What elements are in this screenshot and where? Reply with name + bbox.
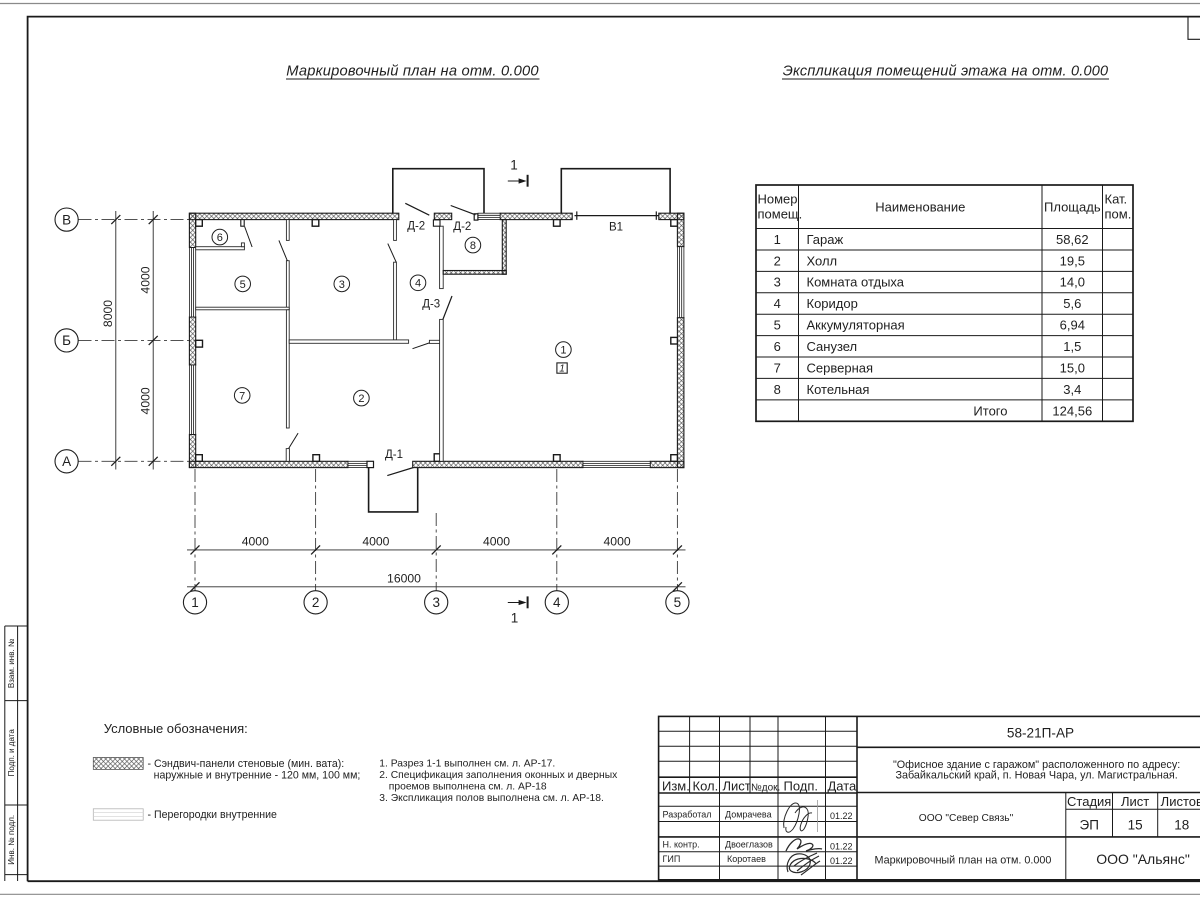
svg-text:2: 2 [312, 595, 320, 610]
svg-text:В1: В1 [609, 221, 623, 233]
svg-text:15,0: 15,0 [1060, 360, 1085, 375]
svg-text:5: 5 [674, 595, 682, 610]
svg-text:1. Разрез 1-1 выполнен см. л.: 1. Разрез 1-1 выполнен см. л. АР-17. [379, 759, 555, 770]
svg-text:Двоеглазов: Двоеглазов [725, 840, 773, 850]
svg-text:Лист: Лист [723, 778, 751, 793]
svg-text:6: 6 [217, 232, 223, 244]
svg-text:1: 1 [560, 345, 566, 357]
svg-text:Домрачева: Домрачева [725, 809, 772, 819]
svg-text:Кат.: Кат. [1105, 192, 1128, 207]
svg-text:3: 3 [432, 595, 440, 610]
svg-text:6: 6 [774, 339, 781, 354]
svg-text:4: 4 [774, 296, 781, 311]
svg-text:1: 1 [559, 363, 565, 374]
svg-text:Д-1: Д-1 [385, 449, 403, 461]
svg-text:- Сэндвич-панели стеновые (мин: - Сэндвич-панели стеновые (мин. вата): [148, 758, 345, 770]
svg-text:1: 1 [510, 158, 518, 173]
svg-text:Котельная: Котельная [807, 382, 870, 397]
svg-text:1: 1 [511, 611, 519, 626]
svg-text:4000: 4000 [604, 534, 631, 548]
svg-text:4: 4 [553, 595, 561, 610]
svg-text:3. Экспликация полов выполнена: 3. Экспликация полов выполнена см. л. АР… [379, 793, 604, 804]
svg-text:2: 2 [774, 253, 781, 268]
svg-text:7: 7 [239, 390, 245, 402]
svg-text:- Перегородки внутренние: - Перегородки внутренние [148, 809, 278, 821]
svg-text:Подп.: Подп. [784, 778, 819, 793]
svg-text:8: 8 [774, 382, 781, 397]
svg-text:8000: 8000 [101, 300, 115, 327]
svg-text:8: 8 [470, 240, 476, 252]
svg-text:Серверная: Серверная [807, 360, 874, 375]
svg-text:Коротаев: Коротаев [727, 854, 766, 864]
svg-text:16000: 16000 [387, 571, 421, 585]
svg-text:Взам. инв. №: Взам. инв. № [7, 638, 16, 688]
svg-text:124,56: 124,56 [1052, 403, 1092, 418]
svg-text:Маркировочный план на отм. 0.0: Маркировочный план на отм. 0.000 [286, 64, 539, 80]
svg-text:Лист: Лист [1121, 794, 1149, 809]
svg-text:Д-2: Д-2 [407, 221, 425, 233]
svg-text:58,62: 58,62 [1056, 232, 1089, 247]
svg-text:Забайкальский край, п. Новая Ч: Забайкальский край, п. Новая Чара, ул. М… [895, 770, 1177, 782]
svg-text:Коридор: Коридор [807, 296, 858, 311]
svg-text:Д-2: Д-2 [453, 221, 471, 233]
svg-text:1: 1 [191, 595, 199, 610]
svg-text:5: 5 [774, 318, 781, 333]
svg-text:2: 2 [358, 393, 364, 405]
svg-text:Разработал: Разработал [663, 809, 712, 819]
svg-text:Дата: Дата [828, 778, 858, 793]
svg-text:Итого: Итого [973, 403, 1007, 418]
svg-text:Стадия: Стадия [1067, 794, 1111, 809]
svg-text:4000: 4000 [139, 387, 153, 414]
svg-text:4000: 4000 [483, 534, 510, 548]
svg-text:01.22: 01.22 [830, 842, 853, 852]
svg-text:А: А [62, 454, 71, 469]
svg-text:наружные и внутренние - 120 мм: наружные и внутренние - 120 мм, 100 мм; [154, 770, 361, 782]
svg-text:Изм.: Изм. [662, 778, 690, 793]
svg-text:ООО "Альянс": ООО "Альянс" [1096, 851, 1190, 867]
svg-text:15: 15 [1128, 817, 1143, 832]
svg-text:ГИП: ГИП [663, 854, 681, 864]
svg-text:Аккумуляторная: Аккумуляторная [807, 318, 905, 333]
svg-text:Гараж: Гараж [807, 232, 844, 247]
svg-text:Санузел: Санузел [807, 339, 858, 354]
svg-text:1: 1 [774, 232, 781, 247]
svg-text:Б: Б [62, 333, 71, 348]
svg-text:Н. контр.: Н. контр. [663, 840, 700, 850]
svg-text:01.22: 01.22 [830, 811, 853, 821]
svg-text:58-21П-АР: 58-21П-АР [1007, 725, 1074, 740]
svg-text:7: 7 [774, 360, 781, 375]
svg-text:Маркировочный план на отм. 0.0: Маркировочный план на отм. 0.000 [875, 855, 1052, 867]
svg-text:Площадь: Площадь [1044, 200, 1101, 215]
svg-text:3: 3 [774, 275, 781, 290]
svg-text:5: 5 [240, 279, 246, 291]
svg-text:Условные обозначения:: Условные обозначения: [104, 721, 248, 736]
svg-text:6,94: 6,94 [1060, 318, 1085, 333]
svg-text:ЭП: ЭП [1079, 817, 1098, 832]
svg-text:4: 4 [415, 278, 421, 290]
svg-text:Кол.: Кол. [693, 778, 719, 793]
svg-text:Холл: Холл [807, 253, 838, 268]
svg-text:№док.: №док. [751, 782, 780, 793]
svg-text:4000: 4000 [139, 266, 153, 293]
svg-text:18: 18 [1174, 817, 1189, 832]
svg-text:В: В [62, 212, 71, 227]
svg-text:19,5: 19,5 [1060, 253, 1085, 268]
svg-text:01.22: 01.22 [830, 856, 853, 866]
svg-text:5,6: 5,6 [1063, 296, 1081, 311]
svg-text:Наименование: Наименование [875, 200, 965, 215]
svg-text:3,4: 3,4 [1063, 382, 1081, 397]
svg-text:пом.: пом. [1105, 207, 1132, 222]
svg-text:3: 3 [339, 279, 345, 291]
svg-text:Комната отдыха: Комната отдыха [807, 275, 905, 290]
svg-text:ООО "Север Связь": ООО "Север Связь" [919, 813, 1014, 824]
svg-text:4000: 4000 [362, 534, 389, 548]
svg-text:Инв. № подл.: Инв. № подл. [7, 815, 16, 865]
svg-text:Подп. и дата: Подп. и дата [7, 729, 16, 777]
svg-text:помещ.: помещ. [758, 207, 803, 222]
svg-text:Экспликация помещений этажа на: Экспликация помещений этажа на отм. 0.00… [783, 64, 1109, 80]
svg-text:Листов: Листов [1161, 794, 1200, 809]
svg-text:Д-3: Д-3 [422, 299, 440, 311]
svg-text:4000: 4000 [242, 534, 269, 548]
svg-text:1,5: 1,5 [1063, 339, 1081, 354]
svg-text:14,0: 14,0 [1060, 275, 1085, 290]
svg-text:Номер: Номер [758, 192, 798, 207]
svg-text:проемов выполнена см. л. АР-18: проемов выполнена см. л. АР-18 [389, 782, 547, 793]
svg-text:2. Спецификация заполнения око: 2. Спецификация заполнения оконных и две… [379, 769, 618, 781]
